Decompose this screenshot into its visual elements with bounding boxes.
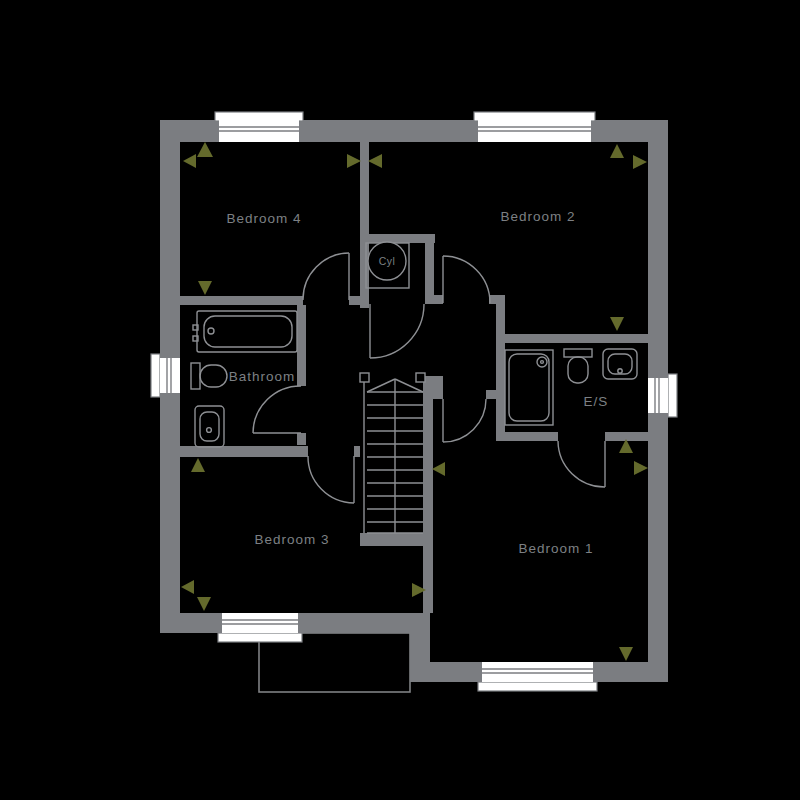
label-ensuite: E/S xyxy=(584,394,609,409)
door-bedroom2 xyxy=(443,256,490,303)
wall-cupboard-right xyxy=(425,243,434,304)
wall-cupboard-top xyxy=(360,234,435,243)
marker-bed2-up xyxy=(610,144,624,158)
wall-bed2-bottom-left xyxy=(425,295,443,304)
marker-bed4-left xyxy=(183,154,196,168)
wall-ensuite-bottom-right xyxy=(605,432,648,441)
marker-bed4-down xyxy=(198,281,212,295)
marker-bed3-down xyxy=(197,597,211,611)
label-bedroom3: Bedroom 3 xyxy=(254,532,329,547)
label-bedroom1: Bedroom 1 xyxy=(518,541,593,556)
wall-landing-stub xyxy=(486,390,496,399)
marker-bed1-down xyxy=(619,647,633,661)
wall-bed1-left xyxy=(423,376,433,613)
marker-divider-right-point xyxy=(347,154,361,168)
staircase xyxy=(360,373,425,533)
floor-plan-drawing: Cyl xyxy=(0,0,800,800)
basin-icon-bathroom xyxy=(195,406,224,447)
stairs-winder-left xyxy=(367,379,395,392)
toilet-icon-bathroom xyxy=(191,363,227,389)
marker-bed1-left xyxy=(432,462,445,476)
label-bathroom: Bathroom xyxy=(229,369,296,384)
wall-bed3-top-right xyxy=(354,446,360,457)
marker-bed2-right xyxy=(633,155,647,169)
wall-ensuite-left xyxy=(496,295,505,441)
door-bedroom1 xyxy=(443,399,486,442)
window-bedroom4 xyxy=(215,112,303,142)
wall-bed3-top-left xyxy=(160,446,308,457)
marker-bed2-down xyxy=(610,317,624,331)
wall-bed4-bottom-right xyxy=(349,296,360,305)
ensuite-fixtures xyxy=(505,349,637,425)
wall-ensuite-bottom-left xyxy=(496,432,558,441)
wall-stairwell-bottom xyxy=(360,533,423,546)
label-bedroom2: Bedroom 2 xyxy=(500,209,575,224)
marker-bed1-up xyxy=(619,439,633,453)
door-bedroom3 xyxy=(308,456,354,503)
wall-bed4-bottom-left xyxy=(180,296,303,305)
marker-bed4-up xyxy=(197,142,213,157)
cylinder-label: Cyl xyxy=(379,255,396,267)
stairs-newel-right xyxy=(416,373,425,382)
marker-bed3-up xyxy=(191,458,205,472)
marker-bed3-left xyxy=(181,580,194,594)
label-bedroom4: Bedroom 4 xyxy=(226,211,301,226)
wall-bathroom-right-lower xyxy=(297,433,306,445)
cylinder-cupboard: Cyl xyxy=(366,242,409,288)
shower-icon xyxy=(505,350,553,425)
basin-icon-ensuite xyxy=(603,349,637,379)
door-bedroom4 xyxy=(303,253,349,300)
toilet-icon-ensuite xyxy=(564,349,592,383)
stairs-newel-left xyxy=(360,373,369,382)
marker-bed1-right xyxy=(634,461,648,475)
marker-divider-left-point xyxy=(368,154,382,168)
door-bathroom xyxy=(253,386,301,433)
window-ensuite xyxy=(648,374,677,417)
floor-plan-canvas: Cyl xyxy=(0,0,800,800)
window-bedroom3 xyxy=(218,613,302,642)
wall-bed4-bed2-divider xyxy=(360,142,369,308)
door-cylinder-cupboard xyxy=(370,304,424,358)
door-ensuite xyxy=(558,441,605,487)
wall-bathroom-right-upper xyxy=(297,305,306,386)
bathtub-icon xyxy=(193,311,297,352)
window-bedroom2 xyxy=(474,112,595,142)
wall-ensuite-top xyxy=(505,334,648,343)
window-bathroom xyxy=(151,354,180,397)
window-bedroom1 xyxy=(478,662,597,691)
wall-bed1-door-jamb xyxy=(433,376,443,399)
